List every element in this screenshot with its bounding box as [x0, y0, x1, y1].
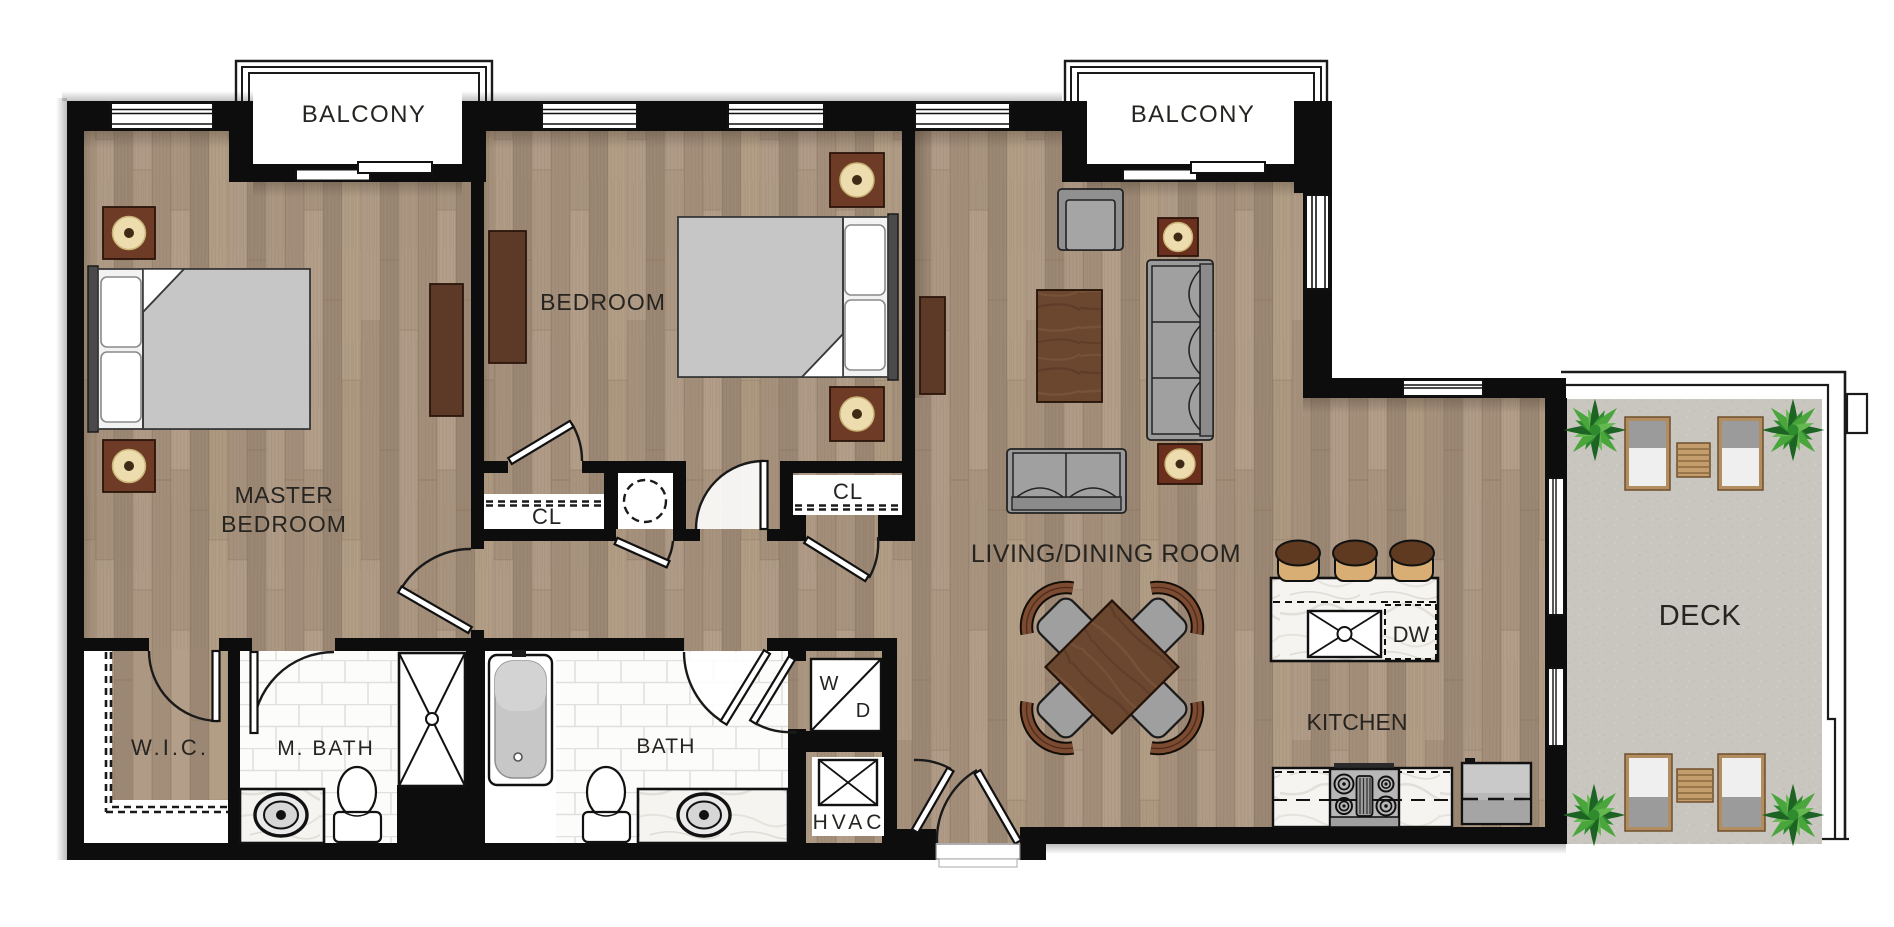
svg-text:CL: CL — [833, 479, 863, 504]
svg-text:W.I.C.: W.I.C. — [131, 735, 209, 760]
svg-text:DW: DW — [1393, 622, 1430, 647]
svg-text:D: D — [856, 700, 870, 722]
svg-text:HVAC: HVAC — [813, 811, 886, 834]
svg-text:MASTER: MASTER — [235, 482, 334, 508]
svg-text:BATH: BATH — [636, 735, 695, 758]
svg-text:KITCHEN: KITCHEN — [1307, 709, 1408, 735]
svg-text:DECK: DECK — [1659, 600, 1742, 632]
svg-text:LIVING/DINING ROOM: LIVING/DINING ROOM — [971, 540, 1241, 568]
svg-text:CL: CL — [532, 504, 562, 529]
svg-text:BALCONY: BALCONY — [302, 101, 427, 128]
svg-text:BEDROOM: BEDROOM — [540, 289, 666, 315]
svg-text:BEDROOM: BEDROOM — [221, 511, 347, 537]
svg-text:M. BATH: M. BATH — [277, 737, 375, 760]
svg-text:BALCONY: BALCONY — [1131, 101, 1256, 128]
svg-text:W: W — [820, 673, 839, 695]
